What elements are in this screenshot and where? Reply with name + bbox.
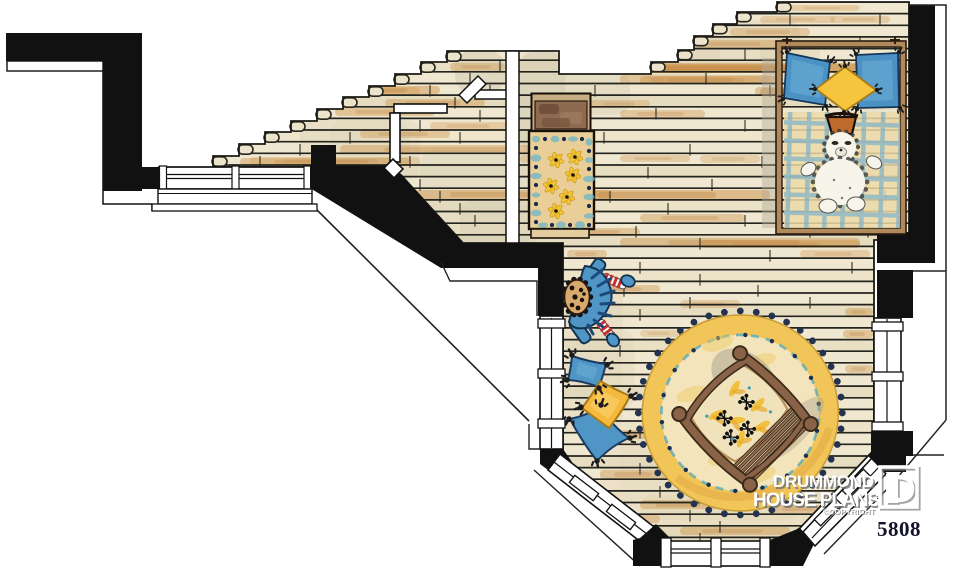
- svg-text:5808: 5808: [877, 517, 921, 541]
- svg-text:DRUMMOND: DRUMMOND: [773, 472, 874, 491]
- svg-text:©COPYRIGHT: ©COPYRIGHT: [823, 507, 875, 516]
